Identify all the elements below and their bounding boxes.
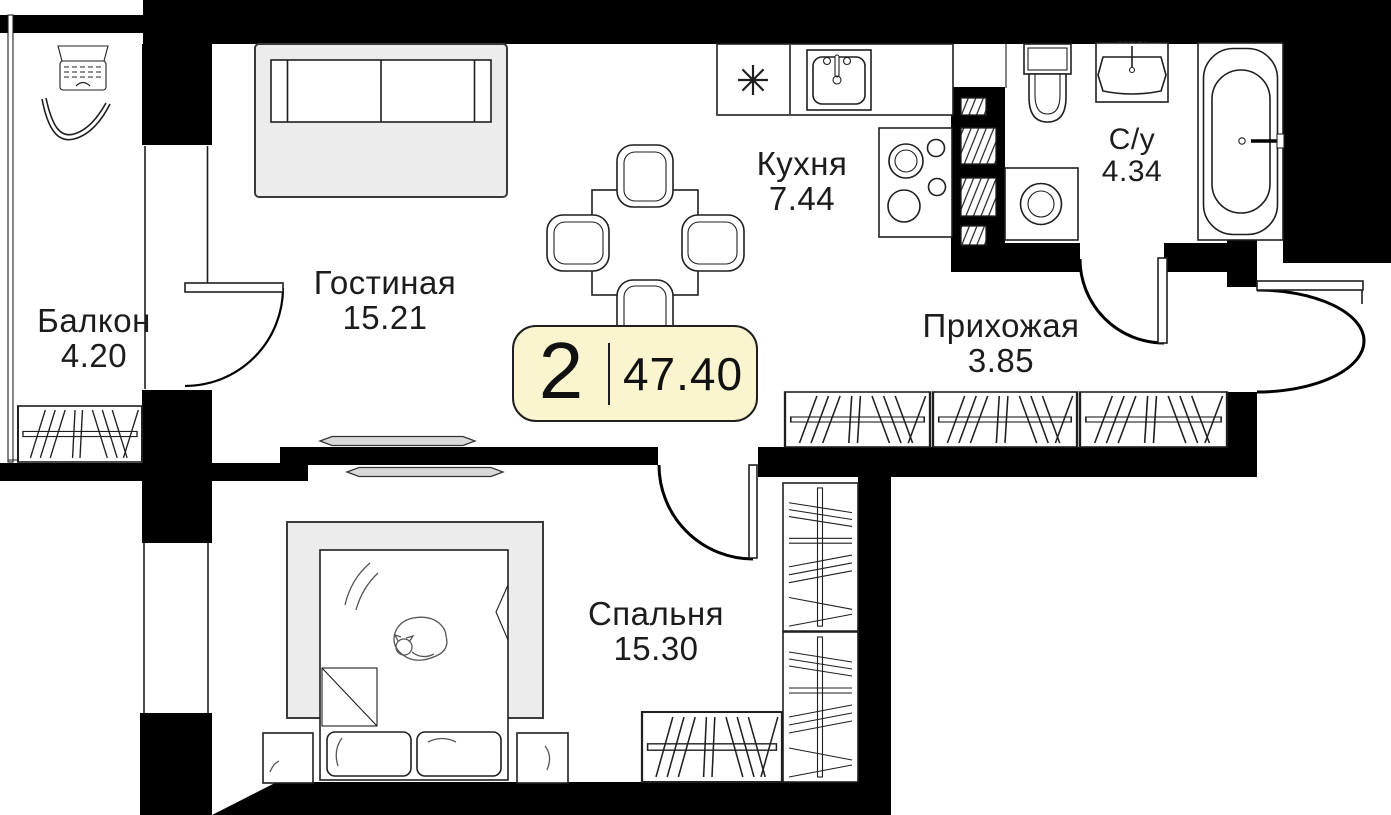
total-area: 47.40 — [610, 347, 756, 401]
dining-chair — [617, 145, 673, 207]
room-label-hallway: Прихожая 3.85 — [923, 308, 1080, 379]
tv-bedroom — [347, 468, 503, 477]
bedroom-wardrobe-bottom — [642, 712, 782, 782]
bedroom-door — [659, 465, 757, 559]
room-name: С/у — [1102, 124, 1162, 156]
bedroom-wardrobe-right — [783, 632, 858, 782]
room-area: 15.21 — [314, 300, 457, 335]
balcony-door — [185, 283, 283, 386]
rooms-count: 2 — [514, 331, 608, 417]
dining-chair — [682, 215, 744, 271]
room-area: 4.20 — [37, 338, 151, 373]
room-name: Спальня — [588, 596, 724, 631]
floor-plan: Балкон 4.20 Гостиная 15.21 Кухня 7.44 С/… — [0, 0, 1391, 815]
sofa — [255, 44, 507, 197]
room-name: Балкон — [37, 303, 151, 338]
bathtub — [1198, 43, 1284, 240]
room-name: Гостиная — [314, 265, 457, 300]
asterisk-symbol — [738, 65, 768, 95]
stove — [879, 128, 952, 237]
nightstand — [517, 733, 568, 783]
room-name: Прихожая — [923, 308, 1080, 343]
entrance-door — [1257, 281, 1364, 392]
toilet — [1024, 44, 1071, 122]
room-label-living: Гостиная 15.21 — [314, 265, 457, 336]
room-name: Кухня — [757, 146, 848, 181]
room-label-kitchen: Кухня 7.44 — [757, 146, 848, 217]
bathroom-door — [1080, 258, 1167, 343]
room-area: 15.30 — [588, 631, 724, 666]
pillow — [417, 732, 501, 776]
room-area: 7.44 — [757, 181, 848, 216]
hallway-wardrobe — [1080, 392, 1227, 447]
bathroom-sink — [1096, 42, 1168, 102]
apartment-summary-badge: 2 47.40 — [512, 325, 758, 422]
hallway-wardrobe — [785, 392, 930, 447]
pipe-icon — [42, 98, 110, 140]
bedroom-wardrobe-right — [783, 483, 858, 631]
pillow — [327, 732, 411, 776]
tv-living-room — [320, 437, 475, 446]
room-label-bathroom: С/у 4.34 — [1102, 124, 1162, 188]
room-area: 4.34 — [1102, 156, 1162, 188]
washing-machine — [1005, 168, 1078, 240]
room-label-balcony: Балкон 4.20 — [37, 303, 151, 374]
nightstand — [263, 733, 313, 783]
hallway-wardrobe — [933, 392, 1077, 447]
room-label-bedroom: Спальня 15.30 — [588, 596, 724, 667]
room-area: 3.85 — [923, 343, 1080, 378]
bed — [287, 522, 543, 780]
bedroom-window — [144, 543, 208, 713]
balcony-cabinet — [18, 406, 142, 462]
dining-chair — [547, 215, 609, 271]
kitchen-sink — [807, 50, 871, 110]
grill-icon — [58, 46, 108, 90]
